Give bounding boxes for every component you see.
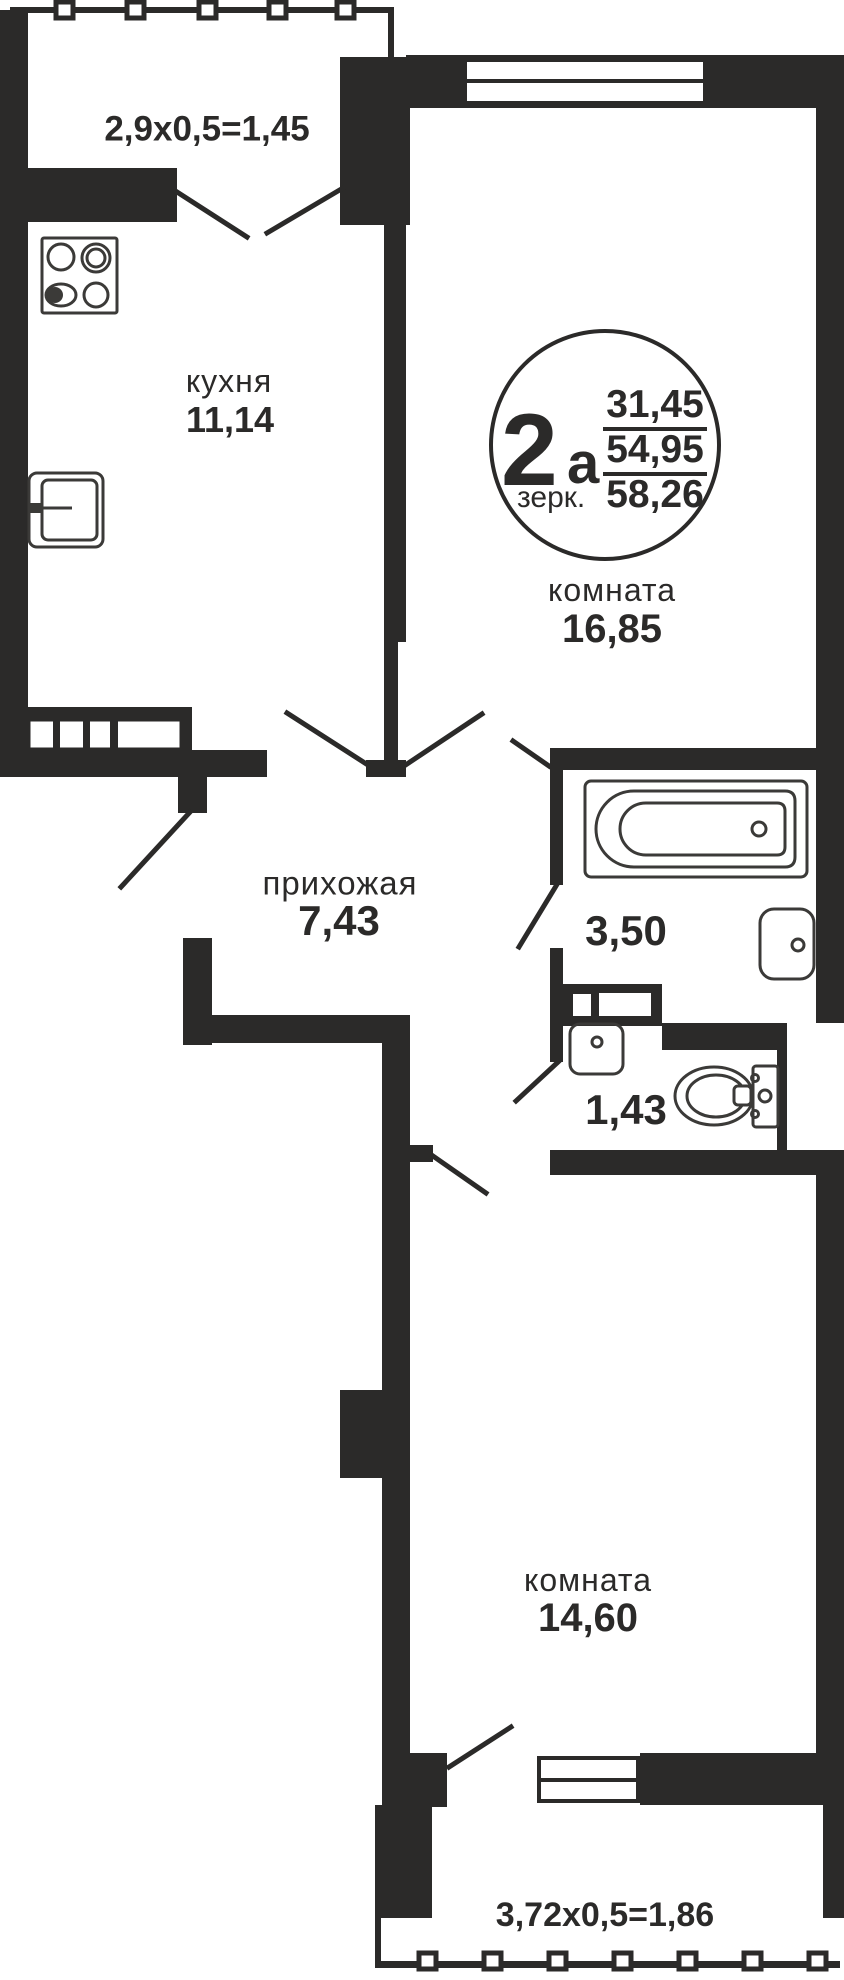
- balcony-top-dimension: 2,9х0,5=1,45: [104, 112, 309, 147]
- room-bottom-area: 14,60: [538, 1598, 638, 1638]
- room-top-area: 16,85: [562, 609, 662, 649]
- toilet-icon: [675, 1066, 778, 1127]
- room-top-label: комната: [548, 574, 676, 606]
- floor-plan: 2,9х0,5=1,45 кухня 11,14 комната 16,85 п…: [0, 0, 844, 1980]
- kitchen-cabinet: [29, 720, 181, 749]
- floorplan-drawing: [0, 0, 844, 1980]
- walls: [0, 7, 844, 1968]
- unit-type-badge: 2 а зерк. 31,45 54,95 58,26: [489, 329, 721, 561]
- wc-washbasin-icon: [570, 1024, 623, 1074]
- window-room-bottom: [539, 1758, 638, 1801]
- room-bottom-label: комната: [524, 1564, 652, 1596]
- bath-washbasin-icon: [760, 909, 814, 979]
- kitchen-sink-icon: [28, 473, 103, 547]
- unit-area-apartment: 54,95: [603, 430, 707, 476]
- bathtub-icon: [585, 781, 807, 877]
- bathroom-area: 3,50: [585, 910, 667, 952]
- kitchen-label: кухня: [186, 365, 272, 397]
- window-room-top: [465, 60, 705, 103]
- hallway-area: 7,43: [298, 900, 380, 942]
- balcony-posts: [56, 2, 826, 1969]
- wc-area: 1,43: [585, 1089, 667, 1131]
- hallway-label: прихожая: [262, 867, 417, 900]
- unit-area-total: 58,26: [603, 475, 707, 517]
- washer-box: [573, 993, 651, 1016]
- kitchen-area: 11,14: [186, 402, 274, 438]
- fixtures: [28, 238, 814, 1127]
- unit-area-living: 31,45: [603, 385, 707, 431]
- balcony-bottom-dimension: 3,72х0,5=1,86: [496, 1898, 714, 1932]
- stove-icon: [42, 238, 117, 313]
- unit-mirror-note: зерк.: [517, 483, 585, 513]
